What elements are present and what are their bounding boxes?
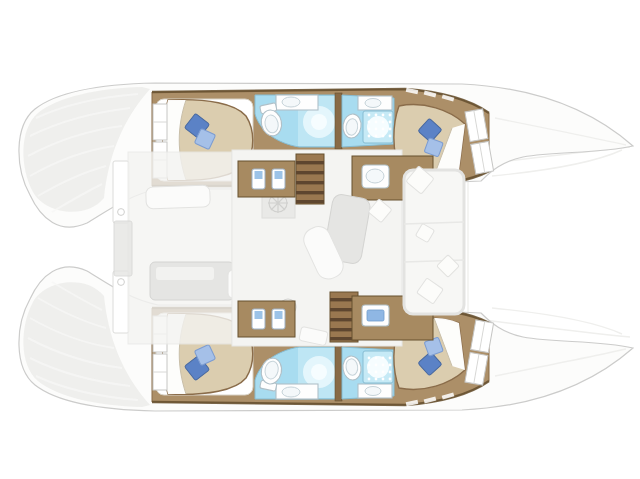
catamaran-floorplan: // Populate DOM from #page-data (generic… xyxy=(0,0,640,479)
galley-counter-top xyxy=(238,161,295,197)
bottom-transom-step xyxy=(113,271,129,333)
bottom-forward-shower-icon xyxy=(363,351,393,383)
galley-appliance xyxy=(272,169,285,189)
forward-cockpit xyxy=(404,166,464,314)
top-transom-step xyxy=(113,161,129,223)
companionway-stairs-top xyxy=(296,154,324,204)
top-bathroom-divider-wall xyxy=(335,93,342,149)
top-forward-sink-icon xyxy=(365,99,381,108)
galley-counter-bottom xyxy=(238,301,295,337)
aft-cockpit-floor xyxy=(128,152,232,344)
aft-cockpit xyxy=(114,152,250,344)
cockpit-bench-seat xyxy=(146,185,211,209)
bottom-aft-sink-icon xyxy=(282,387,300,397)
bottom-forward-bathroom xyxy=(341,347,394,399)
top-aft-sink-icon xyxy=(282,97,300,107)
galley-appliance xyxy=(252,169,265,189)
bottom-bathroom-divider-wall xyxy=(335,345,342,401)
cockpit-table xyxy=(150,262,234,300)
galley-appliance xyxy=(272,309,285,329)
bottom-forward-sink-icon xyxy=(365,387,381,396)
top-forward-shower-icon xyxy=(363,111,393,143)
aft-platform xyxy=(114,221,132,276)
top-forward-bathroom xyxy=(341,95,394,147)
galley-appliance xyxy=(252,309,265,329)
